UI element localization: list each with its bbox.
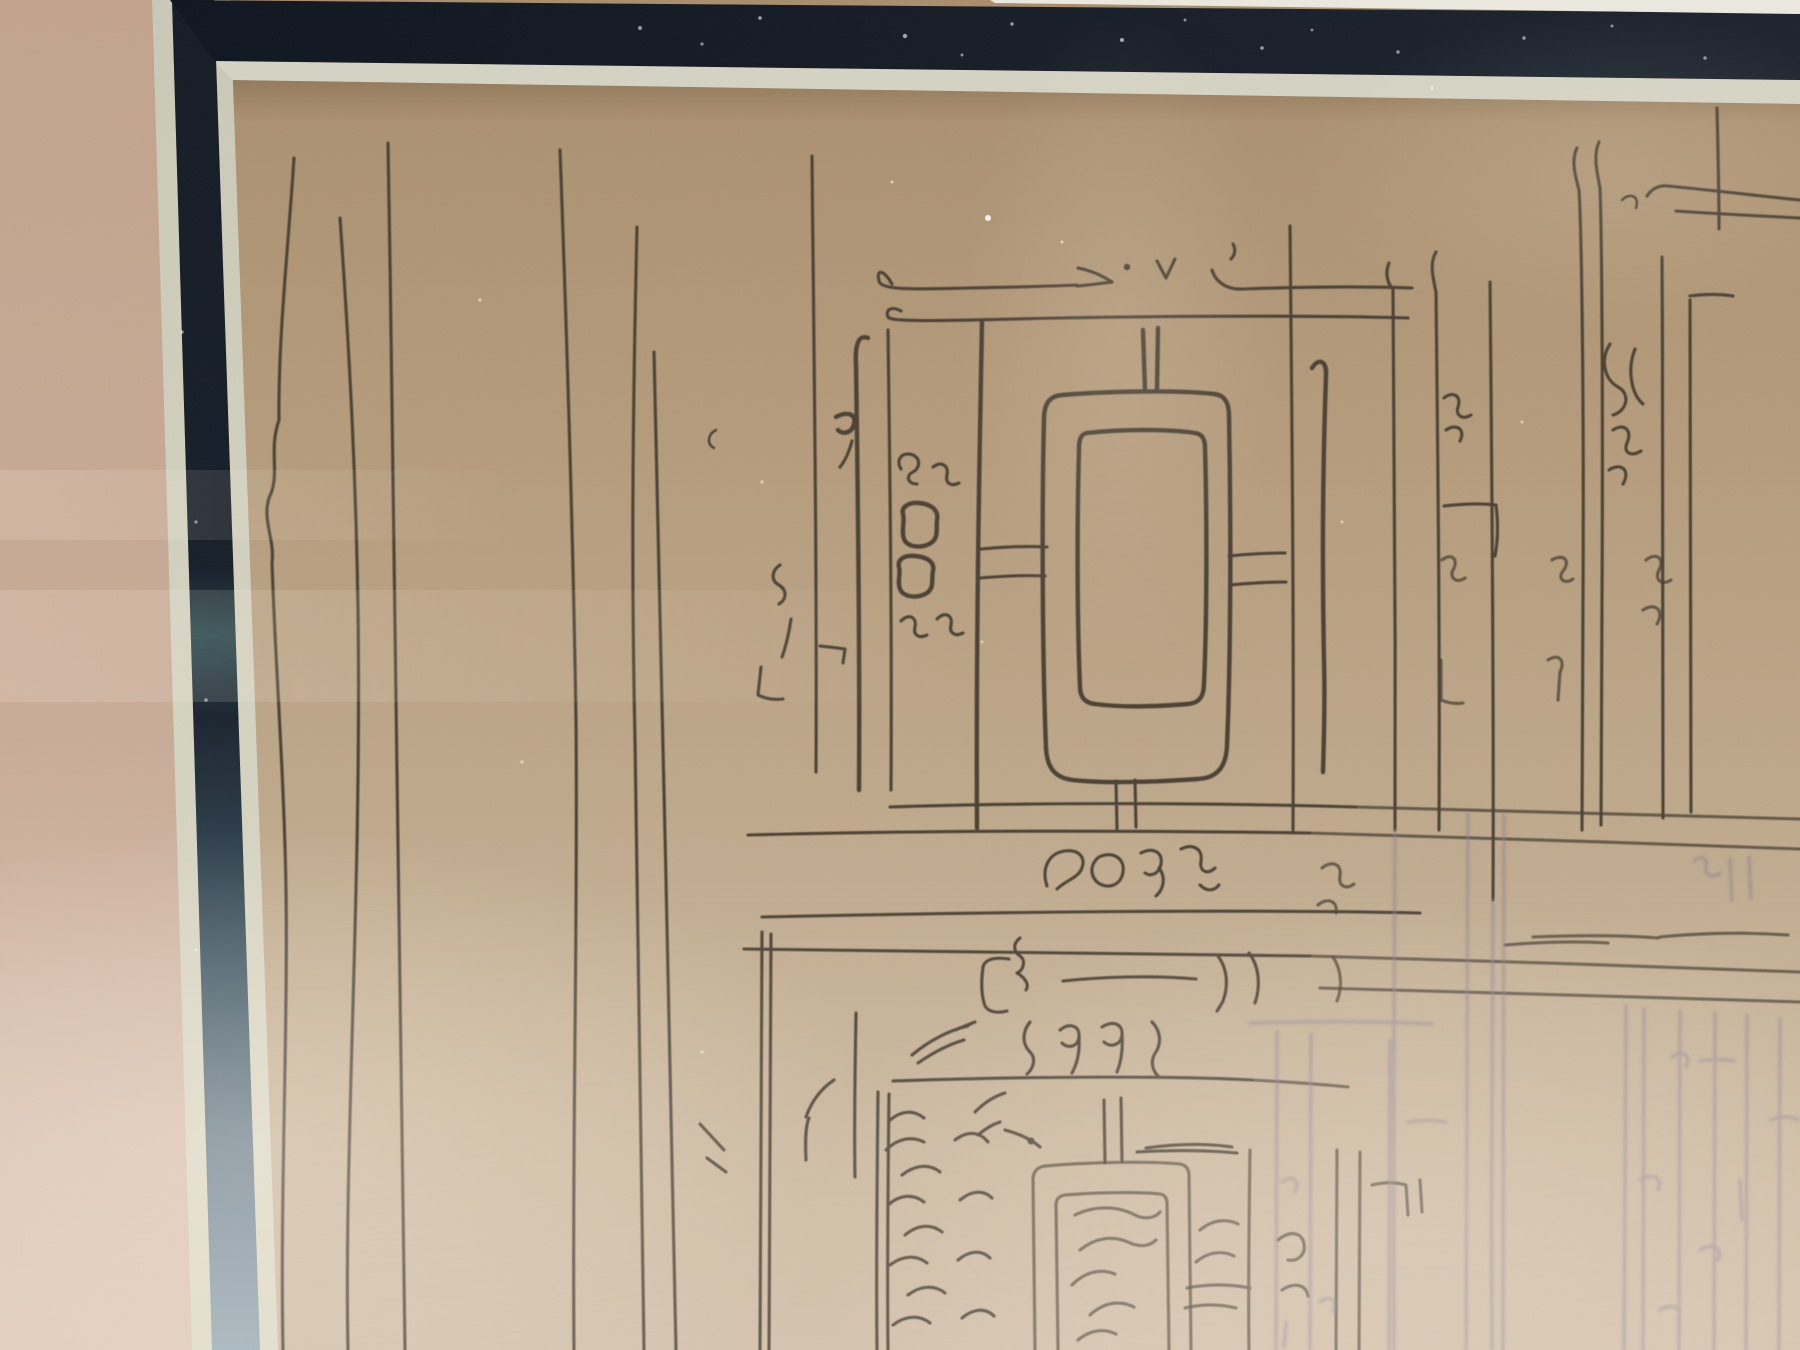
photo-grain <box>0 0 1800 1350</box>
photo-canvas <box>0 0 1800 1350</box>
framed-artwork-photo <box>0 0 1800 1350</box>
